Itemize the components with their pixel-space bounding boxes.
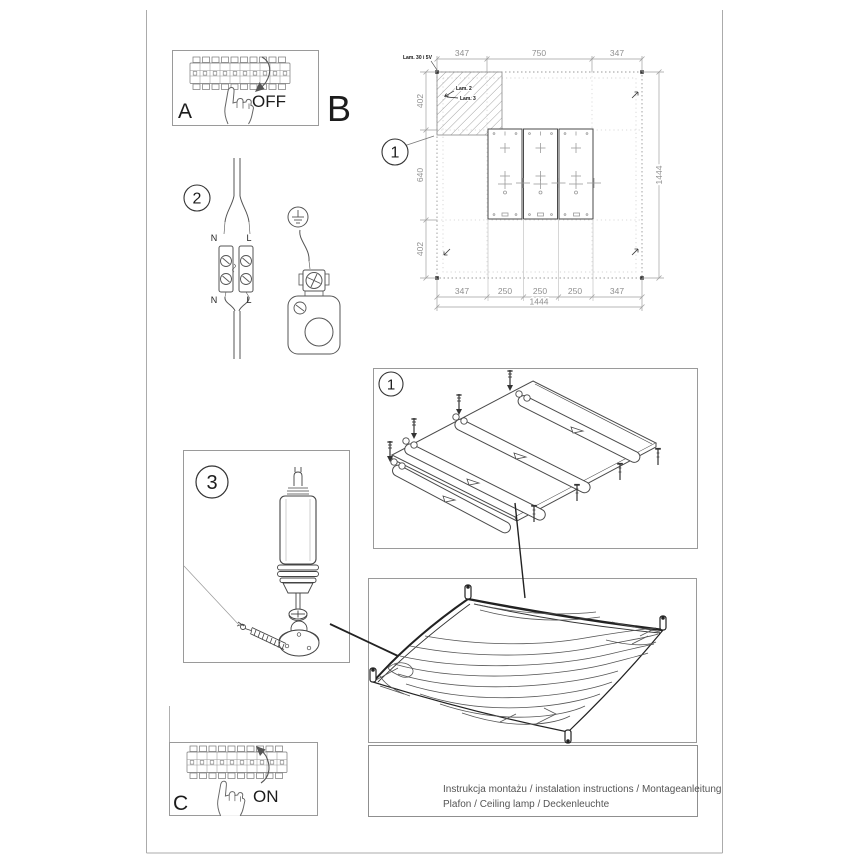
step-b-label: B xyxy=(327,88,351,129)
instruction-sheet-canvas: A OFF B xyxy=(0,0,868,868)
earth-wire xyxy=(300,230,310,269)
dim-top-left: 347 xyxy=(455,48,469,58)
wire-label-l-bottom: L xyxy=(246,295,251,305)
dim-bottom-1: 347 xyxy=(455,286,469,296)
step-3-badge: 3 xyxy=(206,472,217,494)
dim-right-total: 1444 xyxy=(654,165,664,184)
spring-detail-panel: 3 xyxy=(184,451,350,663)
lamp-cable-bottom xyxy=(225,292,249,359)
earth-terminal xyxy=(299,270,329,291)
hatch-label-1: Lam. 2 xyxy=(456,86,472,92)
on-label: ON xyxy=(253,787,279,806)
title-line-2: Plafon / Ceiling lamp / Deckenleuchte xyxy=(443,799,610,810)
title-block: Instrukcja montażu / instalation instruc… xyxy=(369,746,722,817)
supply-cable-top xyxy=(224,158,250,234)
step-1-badge: 1 xyxy=(391,145,400,162)
ceiling-layout-drawing: 347 750 347 402 640 402 1444 347 250 250… xyxy=(382,48,664,311)
wire-label-l-top: L xyxy=(246,233,251,243)
dim-left-mid: 640 xyxy=(415,168,425,182)
dim-bottom-4: 250 xyxy=(568,286,582,296)
dim-top-right: 347 xyxy=(610,48,624,58)
wire-label-n-top: N xyxy=(211,233,218,243)
step-2-badge: 2 xyxy=(193,191,202,208)
wiring-diagram: 2 N L N L xyxy=(184,158,340,359)
dim-bottom-2: 250 xyxy=(498,286,512,296)
hatch-label-2: Lam. 3 xyxy=(460,96,476,102)
canvas-panel-border xyxy=(369,579,697,743)
iso-step-badge: 1 xyxy=(387,377,395,394)
instruction-sheet-page: A OFF B xyxy=(0,0,868,868)
panel-a-label: A xyxy=(178,100,192,123)
wire-label-n-bottom: N xyxy=(211,295,218,305)
mounting-zone-hatched xyxy=(437,72,502,135)
dim-left-top: 402 xyxy=(415,94,425,108)
ceiling-bracket xyxy=(288,291,340,354)
frame-assembly-panel: 1 xyxy=(374,369,698,549)
dim-bottom-5: 347 xyxy=(610,286,624,296)
dim-left-bottom: 402 xyxy=(415,242,425,256)
panel-c-label: C xyxy=(173,792,188,815)
canvas-diffuser-panel xyxy=(369,579,697,744)
anchor-note-label: Lam. 30 i 5V xyxy=(403,55,433,61)
dim-bottom-3: 250 xyxy=(533,286,547,296)
off-label: OFF xyxy=(252,92,286,111)
terminal-block xyxy=(219,246,253,292)
panel-a-power-off: A OFF xyxy=(173,51,319,126)
title-line-1: Instrukcja montażu / instalation instruc… xyxy=(443,784,722,795)
panel-c-power-on: C ON xyxy=(170,706,318,816)
dim-bottom-total: 1444 xyxy=(530,297,549,307)
dim-top-center: 750 xyxy=(532,48,546,58)
earth-symbol-icon xyxy=(288,207,308,227)
